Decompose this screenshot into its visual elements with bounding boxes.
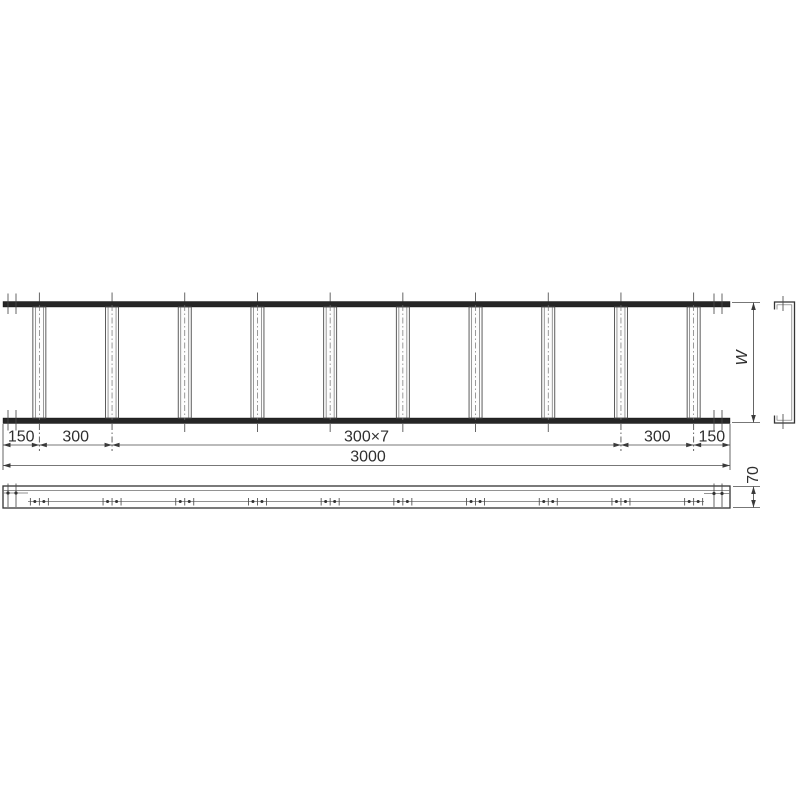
rung <box>469 293 482 433</box>
rivet <box>406 500 409 503</box>
rung <box>106 293 119 452</box>
rung <box>178 293 191 433</box>
plan-view <box>3 293 730 452</box>
dim-arrow-left <box>3 463 11 468</box>
total-dimension-row: 3000 <box>3 449 730 468</box>
dim-arrow-up <box>751 487 756 495</box>
rivet <box>106 500 109 503</box>
rung <box>687 293 700 452</box>
rung <box>33 293 46 452</box>
dim-label: 300 <box>62 429 89 446</box>
dim-label: 300×7 <box>344 429 389 446</box>
end-bolt <box>6 491 9 494</box>
height-dimension: 70 <box>733 466 762 508</box>
drawing-page: 150300300×7300150 3000 W <box>0 0 800 800</box>
rung-layer <box>33 293 700 452</box>
side-profile-view <box>775 296 795 429</box>
end-bolt <box>14 491 17 494</box>
dim-label: 150 <box>8 429 35 446</box>
rivet <box>542 500 545 503</box>
rung <box>396 293 409 433</box>
end-bolt <box>720 492 723 495</box>
rivet <box>551 500 554 503</box>
rivet <box>179 500 182 503</box>
end-bolt <box>712 492 715 495</box>
width-dimension-label: W <box>734 349 751 366</box>
dim-label: 300 <box>644 429 671 446</box>
rivet <box>479 500 482 503</box>
dim-arrow-down <box>751 500 756 508</box>
rivet <box>33 500 36 503</box>
rivet <box>397 500 400 503</box>
dim-arrow <box>621 443 629 448</box>
rivet <box>697 500 700 503</box>
dim-arrow-down <box>751 415 756 423</box>
rivet <box>470 500 473 503</box>
rung <box>542 293 555 433</box>
height-dimension-label: 70 <box>745 466 762 484</box>
rivet <box>688 500 691 503</box>
rivet <box>251 500 254 503</box>
dim-arrow <box>105 443 113 448</box>
rivet <box>115 500 118 503</box>
rivet <box>188 500 191 503</box>
dim-arrow-up <box>751 303 756 311</box>
technical-drawing-canvas: 150300300×7300150 3000 W <box>0 0 800 800</box>
rung <box>324 293 337 433</box>
elevation-end-bolts <box>6 484 723 508</box>
width-dimension: W <box>732 303 760 423</box>
rivet <box>324 500 327 503</box>
rivet <box>333 500 336 503</box>
side-profile-inner <box>777 305 792 420</box>
elevation-view <box>3 484 730 509</box>
rung <box>251 293 264 433</box>
dim-arrow <box>613 443 621 448</box>
total-length-label: 3000 <box>350 449 386 466</box>
dim-arrow <box>686 443 694 448</box>
dim-arrow <box>112 443 120 448</box>
rung <box>614 293 627 452</box>
rivet <box>615 500 618 503</box>
rivet <box>624 500 627 503</box>
dim-label: 150 <box>698 429 725 446</box>
rivet <box>42 500 45 503</box>
dim-arrow-right <box>723 463 731 468</box>
rivet <box>260 500 263 503</box>
dim-arrow <box>39 443 47 448</box>
